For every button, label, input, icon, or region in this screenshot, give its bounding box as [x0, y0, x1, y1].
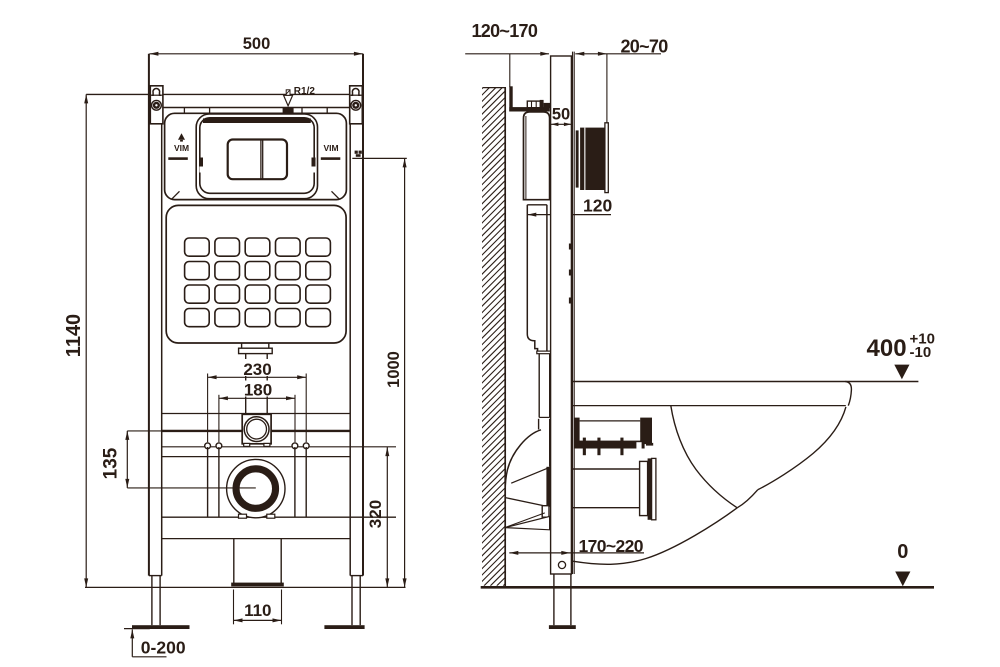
svg-text:0: 0 [897, 541, 908, 563]
svg-text:120~170: 120~170 [472, 21, 538, 41]
svg-text:170~220: 170~220 [579, 536, 644, 556]
svg-text:VIM: VIM [323, 143, 338, 153]
svg-text:-10: -10 [910, 344, 932, 361]
svg-text:400: 400 [867, 335, 907, 362]
svg-text:120: 120 [583, 196, 612, 216]
svg-text:R1/2: R1/2 [294, 86, 316, 97]
svg-text:20~70: 20~70 [621, 37, 669, 57]
svg-text:180: 180 [244, 381, 272, 400]
svg-text:VIM: VIM [174, 143, 189, 153]
svg-text:0-200: 0-200 [141, 637, 186, 657]
svg-text:500: 500 [243, 35, 271, 53]
svg-text:110: 110 [244, 601, 271, 620]
svg-text:1000: 1000 [385, 351, 403, 388]
svg-text:320: 320 [366, 500, 385, 528]
svg-text:1140: 1140 [63, 314, 85, 357]
svg-text:230: 230 [243, 360, 271, 379]
svg-text:50: 50 [552, 106, 570, 124]
svg-text:135: 135 [101, 447, 122, 479]
